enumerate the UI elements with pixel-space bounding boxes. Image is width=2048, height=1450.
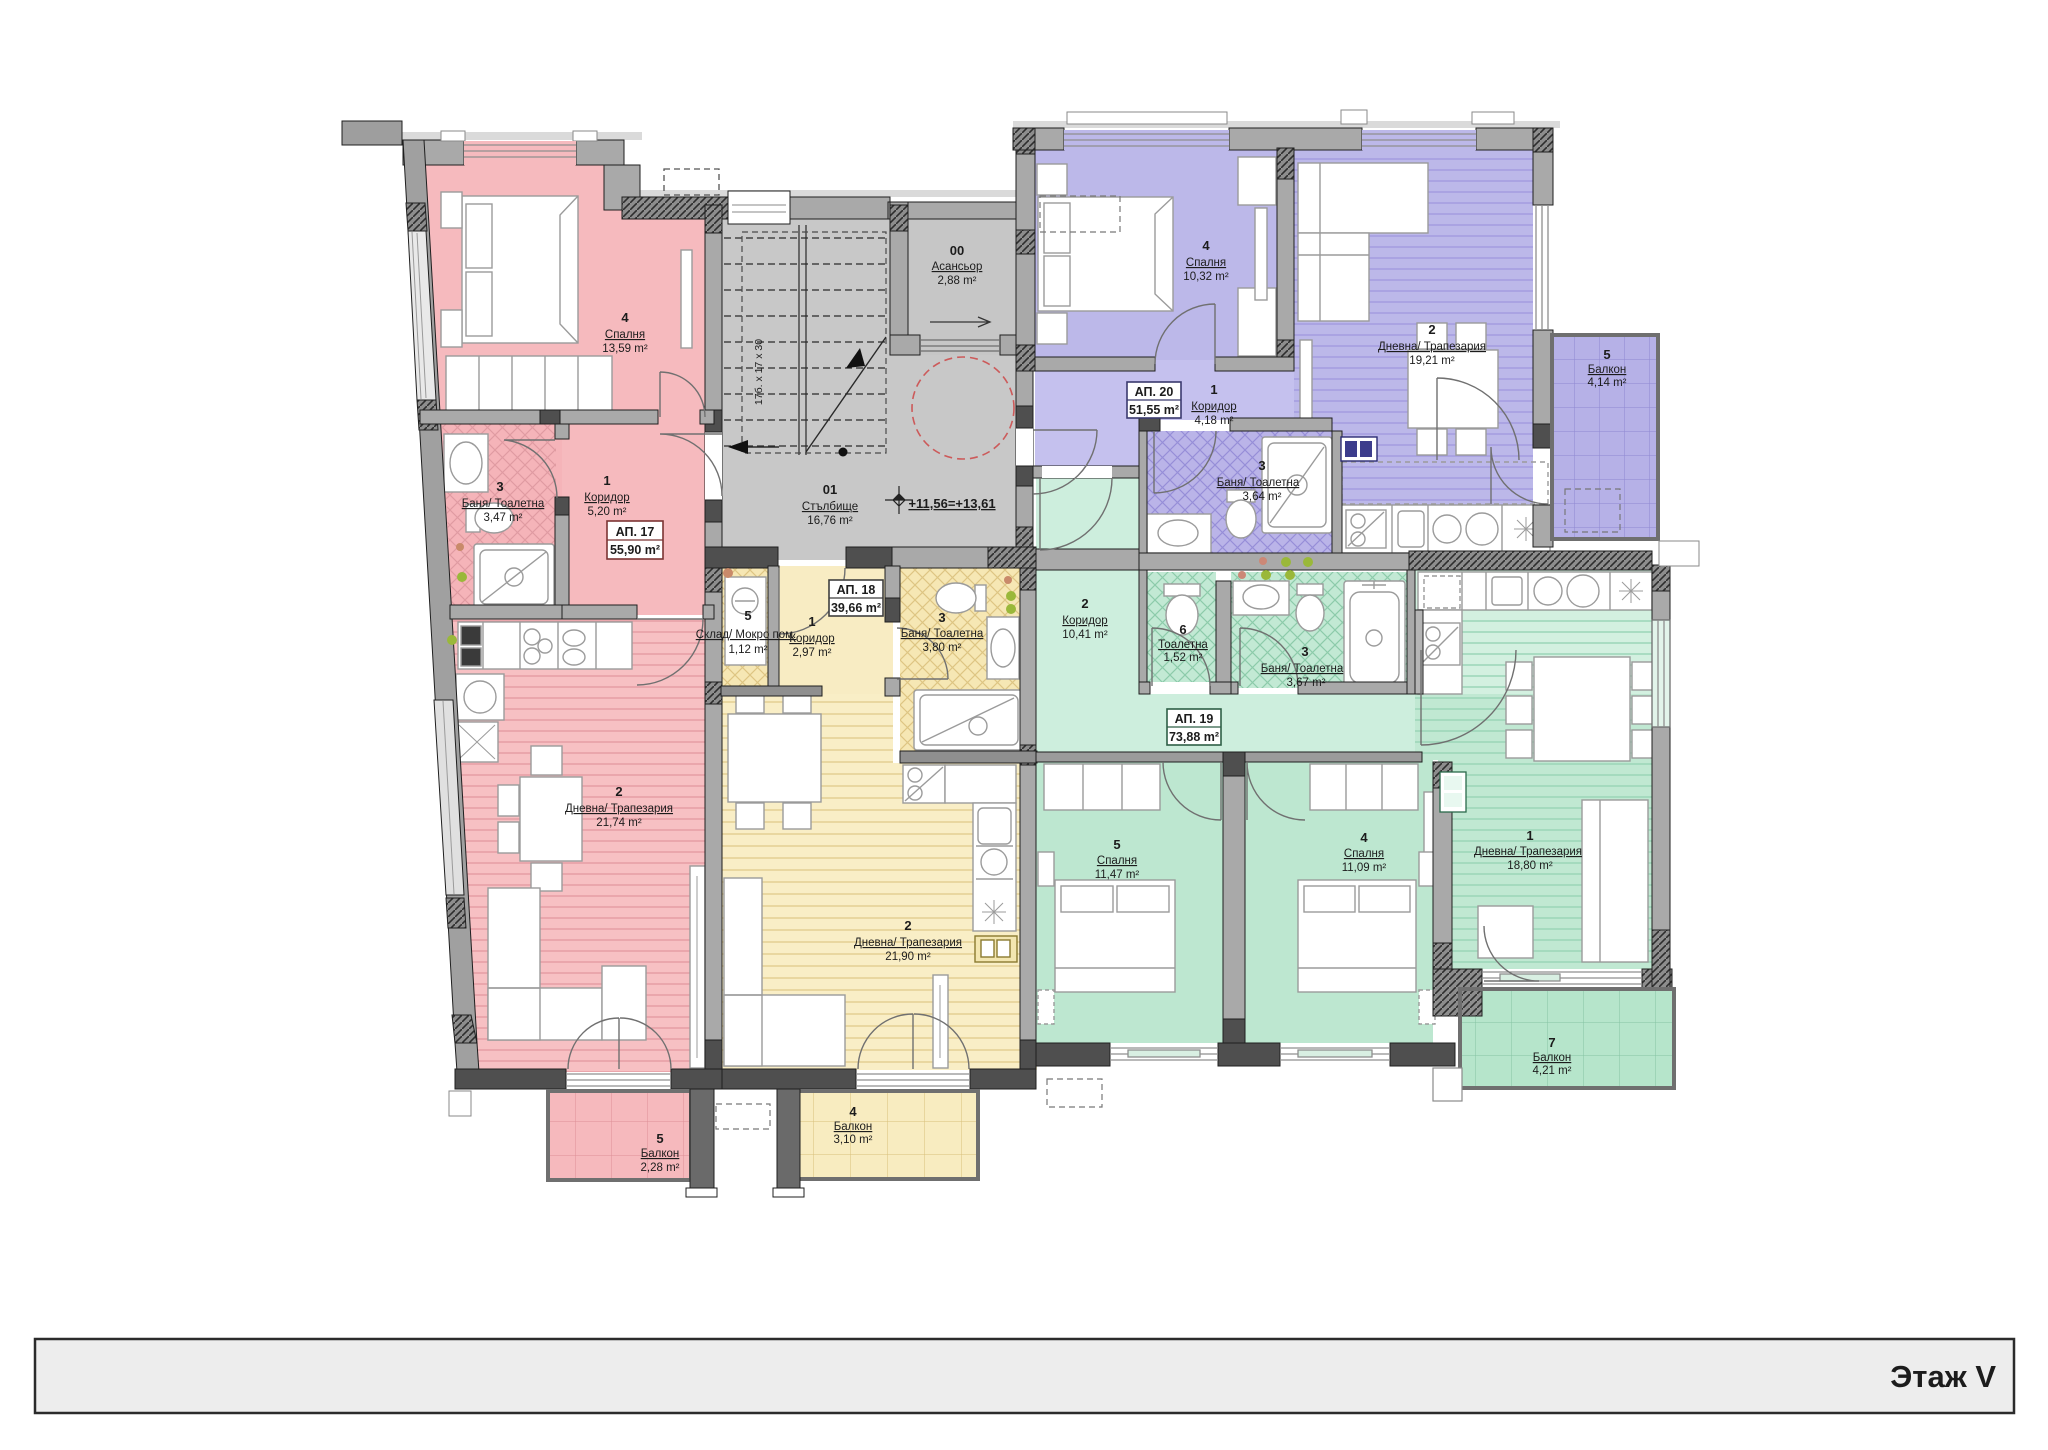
- svg-text:18,80 m²: 18,80 m²: [1507, 860, 1553, 872]
- svg-text:1,12 m²: 1,12 m²: [729, 644, 768, 656]
- svg-text:Баня/ Тоалетна: Баня/ Тоалетна: [1261, 663, 1344, 675]
- svg-text:3,80 m²: 3,80 m²: [923, 642, 962, 654]
- svg-text:Этаж V: Этаж V: [1890, 1359, 1996, 1394]
- svg-text:51,55 m²: 51,55 m²: [1129, 403, 1179, 417]
- svg-text:2: 2: [1428, 322, 1435, 337]
- svg-text:10,41 m²: 10,41 m²: [1062, 629, 1108, 641]
- svg-text:21,74 m²: 21,74 m²: [596, 817, 642, 829]
- svg-text:Баня/ Тоалетна: Баня/ Тоалетна: [462, 498, 545, 510]
- svg-text:6: 6: [1179, 622, 1186, 637]
- svg-text:2,97 m²: 2,97 m²: [793, 647, 832, 659]
- svg-text:11,09 m²: 11,09 m²: [1342, 862, 1387, 874]
- svg-text:16,76 m²: 16,76 m²: [807, 515, 853, 527]
- svg-text:1,52 m²: 1,52 m²: [1164, 652, 1203, 664]
- svg-text:55,90 m²: 55,90 m²: [610, 543, 660, 557]
- svg-text:1: 1: [1526, 828, 1533, 843]
- svg-text:01: 01: [823, 482, 837, 497]
- svg-text:5: 5: [744, 608, 751, 623]
- svg-text:АП. 18: АП. 18: [837, 583, 876, 597]
- svg-text:17б. x 17 x 30: 17б. x 17 x 30: [753, 339, 765, 405]
- svg-text:3: 3: [938, 610, 945, 625]
- svg-text:+11,56=+13,61: +11,56=+13,61: [908, 496, 995, 511]
- svg-text:Спалня: Спалня: [605, 329, 645, 341]
- svg-text:Балкон: Балкон: [641, 1148, 680, 1160]
- svg-text:Стълбище: Стълбище: [802, 501, 858, 513]
- svg-text:2: 2: [1081, 596, 1088, 611]
- svg-text:5: 5: [1113, 837, 1120, 852]
- svg-text:4,14 m²: 4,14 m²: [1588, 377, 1627, 389]
- svg-text:13,59 m²: 13,59 m²: [602, 343, 648, 355]
- svg-text:Балкон: Балкон: [1533, 1052, 1572, 1064]
- svg-text:3,67 m²: 3,67 m²: [1287, 677, 1326, 689]
- svg-text:2,28 m²: 2,28 m²: [641, 1162, 680, 1174]
- svg-text:3: 3: [1258, 458, 1265, 473]
- svg-text:1: 1: [808, 614, 815, 629]
- svg-text:Коридор: Коридор: [789, 633, 834, 645]
- svg-text:5: 5: [656, 1131, 663, 1146]
- svg-text:Дневна/ Трапезария: Дневна/ Трапезария: [854, 937, 962, 949]
- svg-text:Спалня: Спалня: [1344, 848, 1384, 860]
- svg-text:3: 3: [1301, 644, 1308, 659]
- svg-text:Баня/ Тоалетна: Баня/ Тоалетна: [1217, 477, 1300, 489]
- svg-text:3,10 m²: 3,10 m²: [834, 1134, 873, 1146]
- svg-text:3,64 m²: 3,64 m²: [1243, 491, 1282, 503]
- svg-text:4: 4: [621, 310, 629, 325]
- svg-text:1: 1: [1210, 382, 1217, 397]
- svg-text:1: 1: [603, 473, 610, 488]
- svg-text:Тоалетна: Тоалетна: [1158, 639, 1208, 651]
- svg-text:7: 7: [1548, 1035, 1555, 1050]
- svg-text:Дневна/ Трапезария: Дневна/ Трапезария: [565, 803, 673, 815]
- svg-text:73,88 m²: 73,88 m²: [1169, 730, 1219, 744]
- svg-text:19,21 m²: 19,21 m²: [1409, 355, 1455, 367]
- svg-text:Коридор: Коридор: [1191, 401, 1236, 413]
- svg-text:Спалня: Спалня: [1097, 855, 1137, 867]
- svg-text:АП. 20: АП. 20: [1135, 385, 1174, 399]
- svg-text:2: 2: [904, 918, 911, 933]
- svg-text:4: 4: [1202, 238, 1210, 253]
- svg-text:39,66 m²: 39,66 m²: [831, 601, 881, 615]
- svg-text:Асансьор: Асансьор: [932, 261, 983, 273]
- svg-text:2: 2: [615, 784, 622, 799]
- svg-text:11,47 m²: 11,47 m²: [1095, 869, 1140, 881]
- svg-text:4,18 m²: 4,18 m²: [1195, 415, 1234, 427]
- svg-text:5: 5: [1603, 347, 1610, 362]
- svg-text:Дневна/ Трапезария: Дневна/ Трапезария: [1378, 341, 1486, 353]
- svg-text:Коридор: Коридор: [1062, 615, 1107, 627]
- svg-text:2,88 m²: 2,88 m²: [938, 275, 977, 287]
- svg-text:Спалня: Спалня: [1186, 257, 1226, 269]
- svg-text:АП. 17: АП. 17: [616, 525, 655, 539]
- svg-text:Коридор: Коридор: [584, 492, 629, 504]
- svg-text:21,90 m²: 21,90 m²: [885, 951, 931, 963]
- svg-text:Дневна/ Трапезария: Дневна/ Трапезария: [1474, 846, 1582, 858]
- svg-text:4: 4: [1360, 830, 1368, 845]
- svg-text:4,21 m²: 4,21 m²: [1533, 1065, 1572, 1077]
- svg-text:3,47 m²: 3,47 m²: [484, 512, 523, 524]
- svg-text:Балкон: Балкон: [834, 1121, 873, 1133]
- svg-text:10,32 m²: 10,32 m²: [1183, 271, 1229, 283]
- svg-text:4: 4: [849, 1104, 857, 1119]
- svg-text:00: 00: [950, 243, 964, 258]
- svg-text:АП. 19: АП. 19: [1175, 712, 1214, 726]
- svg-text:Баня/ Тоалетна: Баня/ Тоалетна: [901, 628, 984, 640]
- svg-text:Склад/ Мокро пом.: Склад/ Мокро пом.: [696, 629, 797, 641]
- svg-text:5,20 m²: 5,20 m²: [588, 506, 627, 518]
- svg-text:3: 3: [496, 479, 503, 494]
- svg-text:Балкон: Балкон: [1588, 364, 1627, 376]
